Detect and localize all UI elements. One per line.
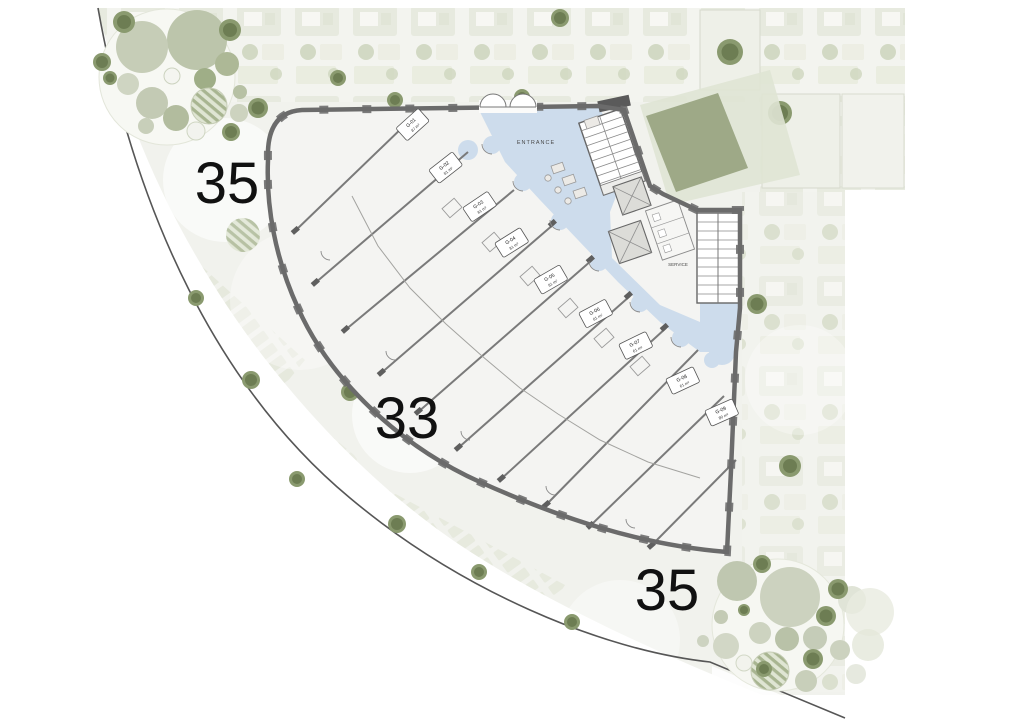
plot-number-35-bottom[interactable]: 35: [635, 558, 700, 623]
site-plan-canvas: ENTRANCE SERVICE G-01 87 m² G-02 81 m² G…: [0, 0, 1024, 724]
site-plan-drawing: ENTRANCE SERVICE G-01 87 m² G-02 81 m² G…: [0, 0, 1024, 724]
building: ENTRANCE SERVICE G-01 87 m² G-02 81 m² G…: [268, 70, 800, 552]
service-label: SERVICE: [668, 262, 688, 267]
service-staircase: [697, 213, 740, 303]
plot-number-35-left[interactable]: 35: [195, 151, 260, 216]
entrance-label: ENTRANCE: [517, 140, 555, 146]
plot-number-33[interactable]: 33: [375, 386, 440, 451]
